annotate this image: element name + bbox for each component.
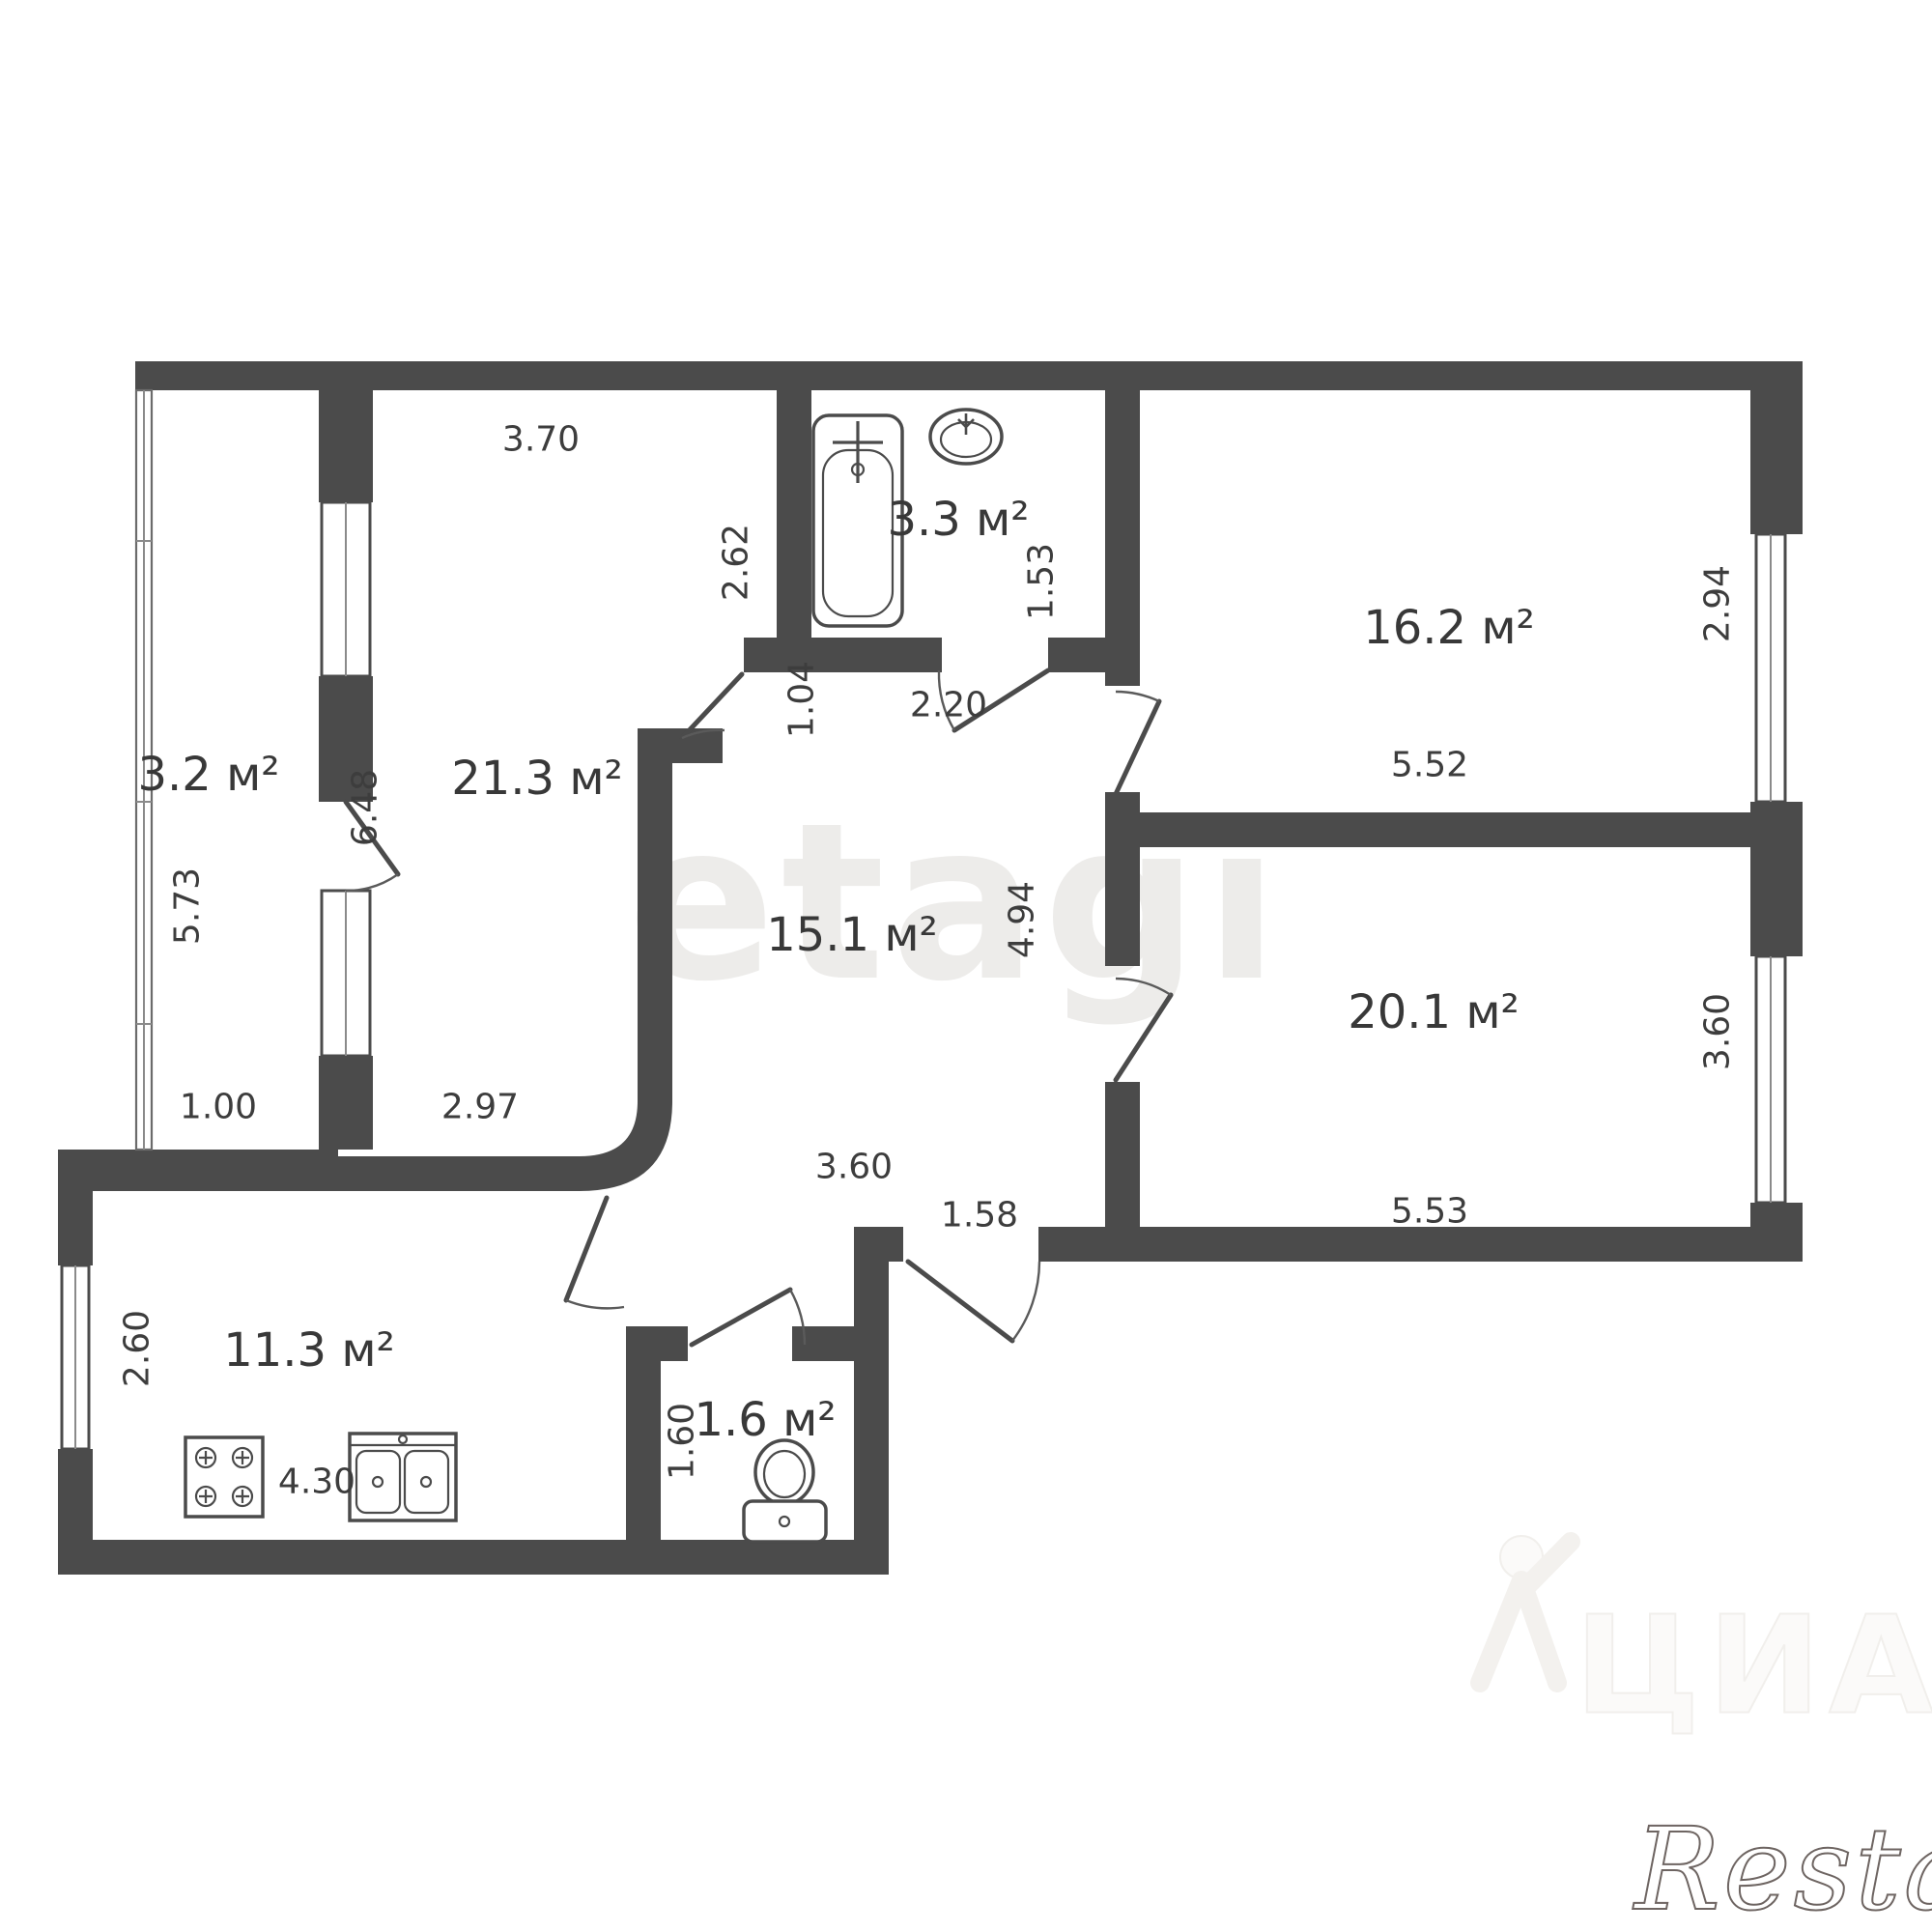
area-label-bathroom: 3.3 м² (887, 493, 1029, 547)
cian-figure-icon (1480, 1536, 1571, 1683)
floor-plan: etagi ЦИАН Restate (0, 0, 1932, 1932)
dim-bedroom2-window: 3.60 (1698, 993, 1738, 1070)
dim-balcony-width: 1.00 (180, 1088, 257, 1127)
dim-hallway-width: 3.60 (815, 1148, 893, 1187)
area-label-balcony: 3.2 м² (137, 748, 279, 802)
dim-living-door: 1.04 (782, 661, 822, 738)
window-bedroom-1 (1756, 534, 1785, 802)
bathroom-sink-icon (930, 410, 1002, 464)
dim-kitchen-width: 4.30 (278, 1463, 355, 1502)
dim-entrance-door: 1.58 (941, 1196, 1018, 1236)
wall-rounded-elbow (580, 1101, 672, 1191)
area-label-hallway: 15.1 м² (766, 908, 938, 962)
dim-hallway-height: 4.94 (1003, 881, 1042, 958)
floor-plan-page: { "plan": { "colors": { "wall": "#4b4b4b… (0, 0, 1932, 1932)
watermark-restate: Restate (1633, 1803, 1932, 1932)
area-label-kitchen: 11.3 м² (223, 1323, 395, 1378)
area-label-bedroom-1: 16.2 м² (1363, 601, 1535, 655)
area-label-wc: 1.6 м² (694, 1393, 836, 1447)
door-entrance (908, 1262, 1039, 1341)
dim-living-bottom-width: 2.97 (441, 1088, 519, 1127)
door-kitchen (566, 1198, 624, 1308)
watermark-cian: ЦИАН (1575, 1588, 1932, 1746)
dim-kitchen-window: 2.60 (118, 1310, 157, 1387)
dim-bedroom2-width: 5.53 (1391, 1192, 1468, 1232)
window-kitchen (62, 1265, 89, 1449)
dim-bathroom-width: 2.20 (910, 686, 987, 725)
dim-living-right-height: 2.62 (717, 524, 756, 601)
window-living-lower (322, 891, 370, 1056)
window-living-upper (322, 502, 370, 676)
window-bedroom-2 (1756, 956, 1785, 1203)
kitchen-sink-icon (350, 1434, 456, 1520)
area-label-bedroom-2: 20.1 м² (1348, 985, 1520, 1039)
dim-wc-height: 1.60 (663, 1403, 702, 1480)
dim-balcony-height: 5.73 (168, 867, 208, 945)
area-label-living-room: 21.3 м² (451, 752, 623, 806)
door-wc (692, 1290, 805, 1345)
dim-bedroom1-width: 5.52 (1391, 746, 1468, 785)
dim-bathroom-height: 1.53 (1022, 543, 1062, 620)
toilet-icon (744, 1440, 826, 1542)
dim-living-height: 6.48 (346, 769, 385, 846)
dim-living-top-width: 3.70 (502, 420, 580, 460)
dim-bedroom1-window: 2.94 (1698, 565, 1738, 642)
stove-icon (185, 1437, 263, 1517)
